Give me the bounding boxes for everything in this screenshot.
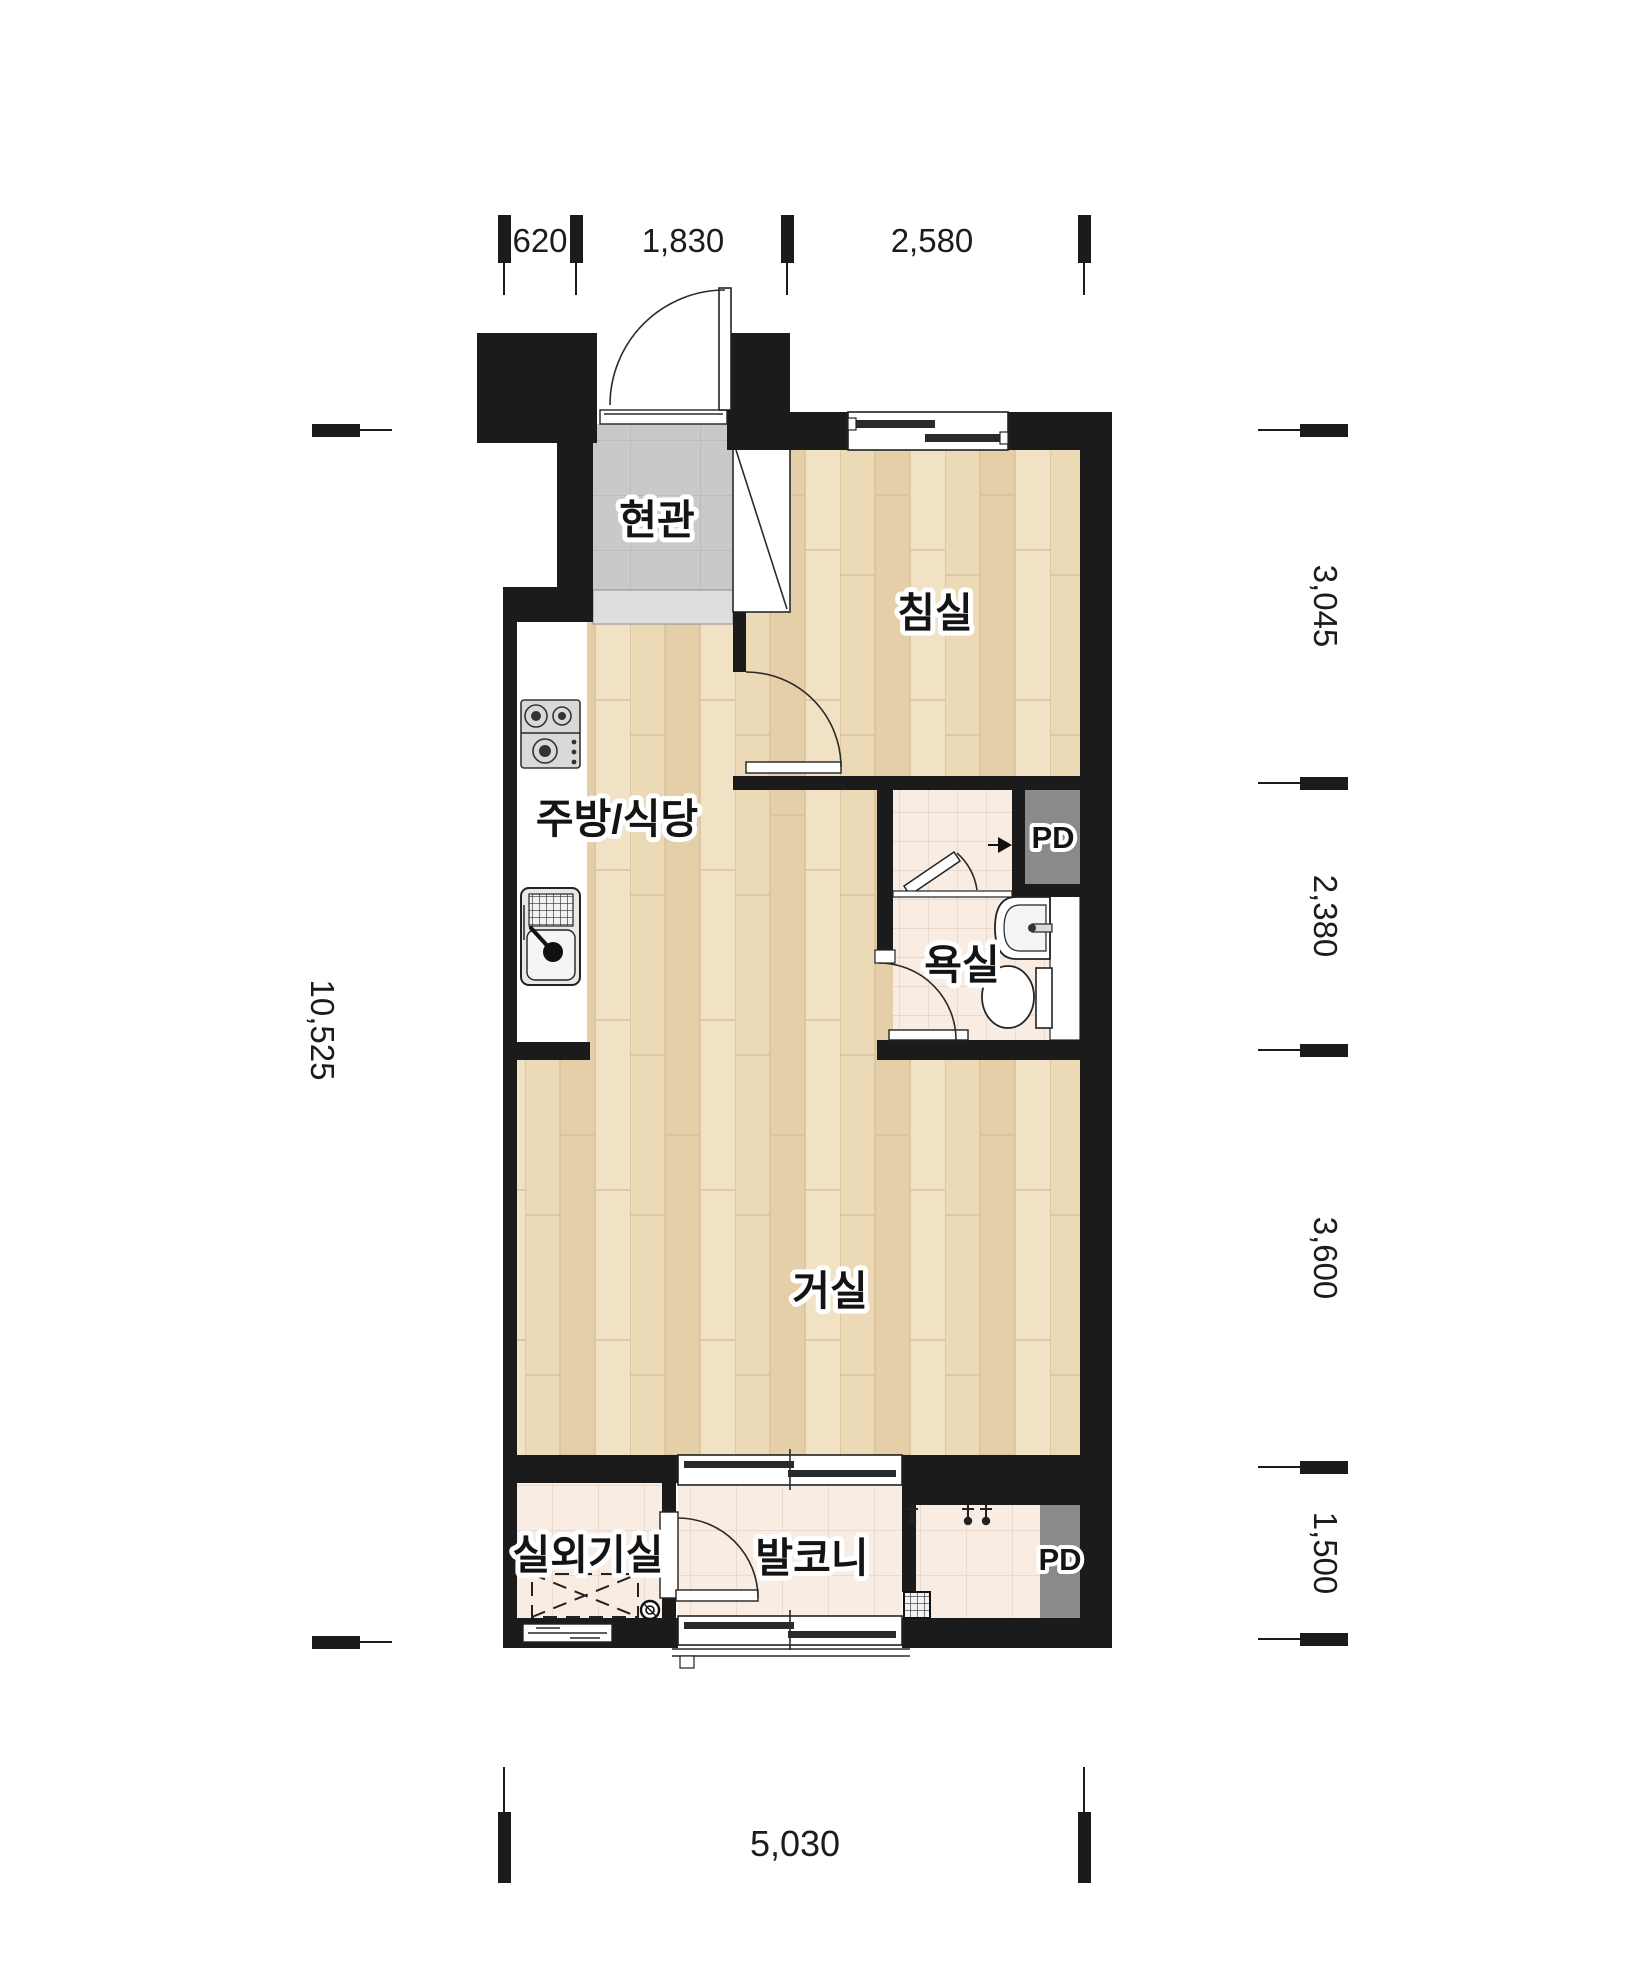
dim-right-1500: 1,500	[1307, 1512, 1344, 1595]
wall-bedroom-stub	[733, 612, 746, 672]
bathroom-label: 욕실	[924, 942, 999, 988]
dim-top-1830: 1,830	[642, 222, 725, 259]
dimension-left: 10,525	[304, 424, 392, 1649]
balcony-outer-window	[672, 1610, 910, 1668]
entrance-door-swing	[610, 290, 725, 405]
entrance-door	[600, 288, 731, 424]
balcony-label: 발코니	[755, 1535, 868, 1581]
wall-left	[503, 587, 517, 1648]
wall-counter-end	[516, 1042, 590, 1060]
wall-living-bottom-right	[902, 1455, 1080, 1505]
bathroom-door-jamb	[875, 950, 895, 963]
ac-room-label: 실외기실	[513, 1532, 664, 1578]
dimension-right: 3,045 2,380 3,600 1,500	[1258, 424, 1348, 1646]
outside-notch	[477, 443, 557, 590]
floor-plan-page: 현관 침실 주방/식당 욕실 거실 실외기실 발코니 PD PD 620 1,8…	[0, 0, 1628, 1968]
wall-bedroom-bottom	[733, 776, 1080, 790]
floor-plan-drawing: 현관 침실 주방/식당 욕실 거실 실외기실 발코니 PD PD 620 1,8…	[0, 0, 1628, 1968]
bathroom-sink	[995, 897, 1052, 959]
floor-drain-square	[904, 1592, 930, 1618]
bedroom-label: 침실	[897, 590, 972, 636]
pd-lower-label: PD	[1038, 1542, 1081, 1577]
wall-balcony-divider-top	[662, 1483, 676, 1512]
wall-bottom-right	[902, 1618, 1112, 1648]
dim-top-620: 620	[512, 222, 567, 259]
utility-floor	[916, 1505, 1040, 1618]
wall-top-left	[727, 412, 848, 450]
bathroom-vanity-strip	[1050, 895, 1080, 1040]
entrance-door-leaf	[719, 288, 731, 410]
balcony-door-leaf	[676, 1590, 758, 1601]
wall-right	[1080, 412, 1112, 1648]
dim-left-10525: 10,525	[304, 980, 341, 1081]
kitchen-dining-label: 주방/식당	[536, 796, 698, 842]
pd-upper-label: PD	[1031, 820, 1074, 855]
wall-bathroom-left	[877, 790, 893, 952]
wall-pd-upper-left	[1012, 790, 1025, 891]
wall-under-pd	[1012, 884, 1080, 897]
bathroom-upper-floor	[893, 790, 1012, 893]
shower-threshold	[893, 891, 1012, 897]
ac-room-louver	[523, 1624, 612, 1642]
dimension-bottom: 5,030	[498, 1767, 1091, 1883]
dim-right-3045: 3,045	[1307, 565, 1344, 648]
bedroom-door-leaf	[746, 762, 841, 773]
shoe-closet	[733, 447, 790, 612]
kitchen-sink	[521, 888, 580, 985]
entrance-step	[593, 590, 733, 624]
dim-bottom-5030: 5,030	[750, 1823, 840, 1864]
wall-entrance-left	[557, 443, 593, 590]
floor-drain-round	[641, 1601, 659, 1619]
bedroom-window	[848, 412, 1008, 450]
wall-living-bottom-left	[503, 1455, 678, 1483]
dim-top-2580: 2,580	[891, 222, 974, 259]
wall-bathroom-bottom	[877, 1040, 1080, 1060]
dimension-top: 620 1,830 2,580	[498, 215, 1091, 295]
dim-right-2380: 2,380	[1307, 875, 1344, 958]
living-room-label: 거실	[792, 1268, 867, 1314]
dim-right-3600: 3,600	[1307, 1217, 1344, 1300]
gas-stove	[521, 700, 580, 768]
living-balcony-window	[678, 1449, 902, 1490]
entrance-door-sill	[600, 410, 727, 424]
wall-balcony-divider-bottom	[662, 1598, 676, 1620]
wall-entrance-wing	[477, 333, 597, 443]
entrance-label: 현관	[619, 497, 694, 543]
wall-entrance-right-flank	[727, 333, 790, 412]
